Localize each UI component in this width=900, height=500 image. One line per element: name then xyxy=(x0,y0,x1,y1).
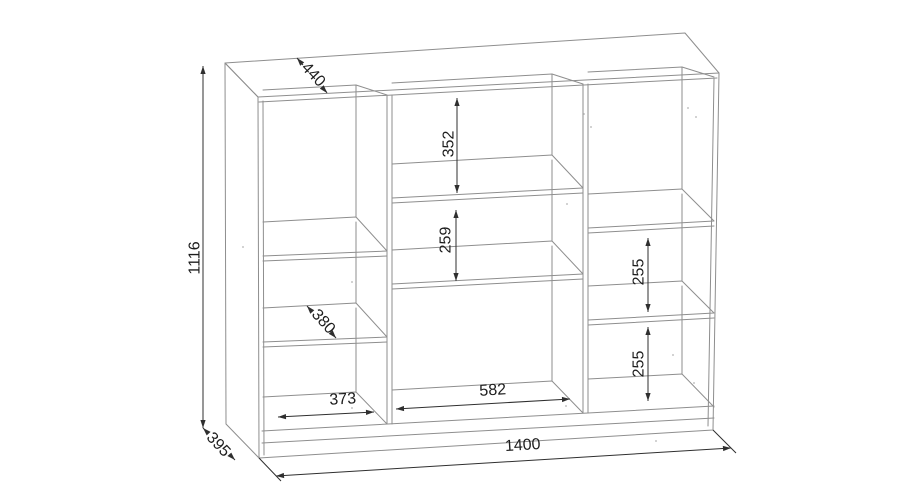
dimension-middle-compartment-width: 582 xyxy=(396,381,570,411)
dim-label-right-middle-compartment: 255 xyxy=(631,259,648,286)
interior-back-corner-edges xyxy=(356,67,682,392)
bottom-panel-front-bottom-edge xyxy=(262,418,714,443)
arrow-down xyxy=(453,273,458,281)
cabinet-outline xyxy=(225,33,719,458)
dim-label-overall-width: 1400 xyxy=(504,436,541,455)
dim-label-right-bottom-compartment: 255 xyxy=(631,351,648,378)
dimension-right-bottom-compartment: 255 xyxy=(631,327,651,401)
cabinet-front-frame xyxy=(259,73,719,458)
cabinet-top-surface xyxy=(225,33,719,97)
arrow-left xyxy=(278,414,286,419)
middle-shelf-lower xyxy=(392,241,583,289)
dimension-middle-top-compartment: 352 xyxy=(441,98,460,193)
arrow-up xyxy=(645,238,650,246)
right-shelf-upper xyxy=(588,189,714,233)
arrow-down-right xyxy=(227,453,235,460)
arrow-down xyxy=(645,304,650,312)
dimension-left-shelf-depth: 380 xyxy=(307,306,338,338)
dimension-overall-height: 1116 xyxy=(187,66,206,428)
interior-top-strips xyxy=(263,67,714,95)
dimension-left-compartment-width: 373 xyxy=(278,390,374,419)
arrow-up xyxy=(454,98,459,106)
arrow-up xyxy=(453,210,458,218)
dim-label-overall-height: 1116 xyxy=(187,241,204,274)
right-shelf-lower xyxy=(588,281,714,325)
arrow-down xyxy=(200,420,205,428)
left-panel-inner-edge xyxy=(263,101,264,455)
dim-label-middle-top-compartment: 352 xyxy=(441,131,458,158)
technical-drawing-page: 440 1116 352 259 255 255 380 xyxy=(0,0,900,500)
overall-width-extension-lines xyxy=(259,430,736,481)
dim-label-middle-compartment-width: 582 xyxy=(479,381,507,400)
top-panel-inner-edge xyxy=(259,78,717,102)
dimension-bottom-depth: 395 xyxy=(203,428,235,460)
vertical-divider-right xyxy=(583,84,588,413)
middle-shelf-upper xyxy=(392,155,583,203)
dim-label-middle-second-compartment: 259 xyxy=(438,227,455,254)
arrow-right xyxy=(366,410,374,415)
dim-label-left-compartment-width: 373 xyxy=(329,390,357,408)
dimension-overall-width: 1400 xyxy=(259,430,736,481)
cabinet-left-side-panel xyxy=(225,63,259,458)
arrow-down xyxy=(454,185,459,193)
fitting-marks xyxy=(242,107,697,442)
technical-drawing-canvas: 440 1116 352 259 255 255 380 xyxy=(0,0,900,500)
right-panel-inner-edge xyxy=(708,79,714,426)
bottom-panel-front-top-edge xyxy=(262,406,714,431)
arrow-up xyxy=(200,66,205,74)
dimension-middle-second-compartment: 259 xyxy=(438,210,459,281)
arrow-down xyxy=(645,393,650,401)
left-shelf-upper xyxy=(263,217,387,261)
vertical-divider-left xyxy=(387,95,392,424)
arrow-up xyxy=(645,327,650,335)
dimension-right-middle-compartment: 255 xyxy=(631,238,651,312)
